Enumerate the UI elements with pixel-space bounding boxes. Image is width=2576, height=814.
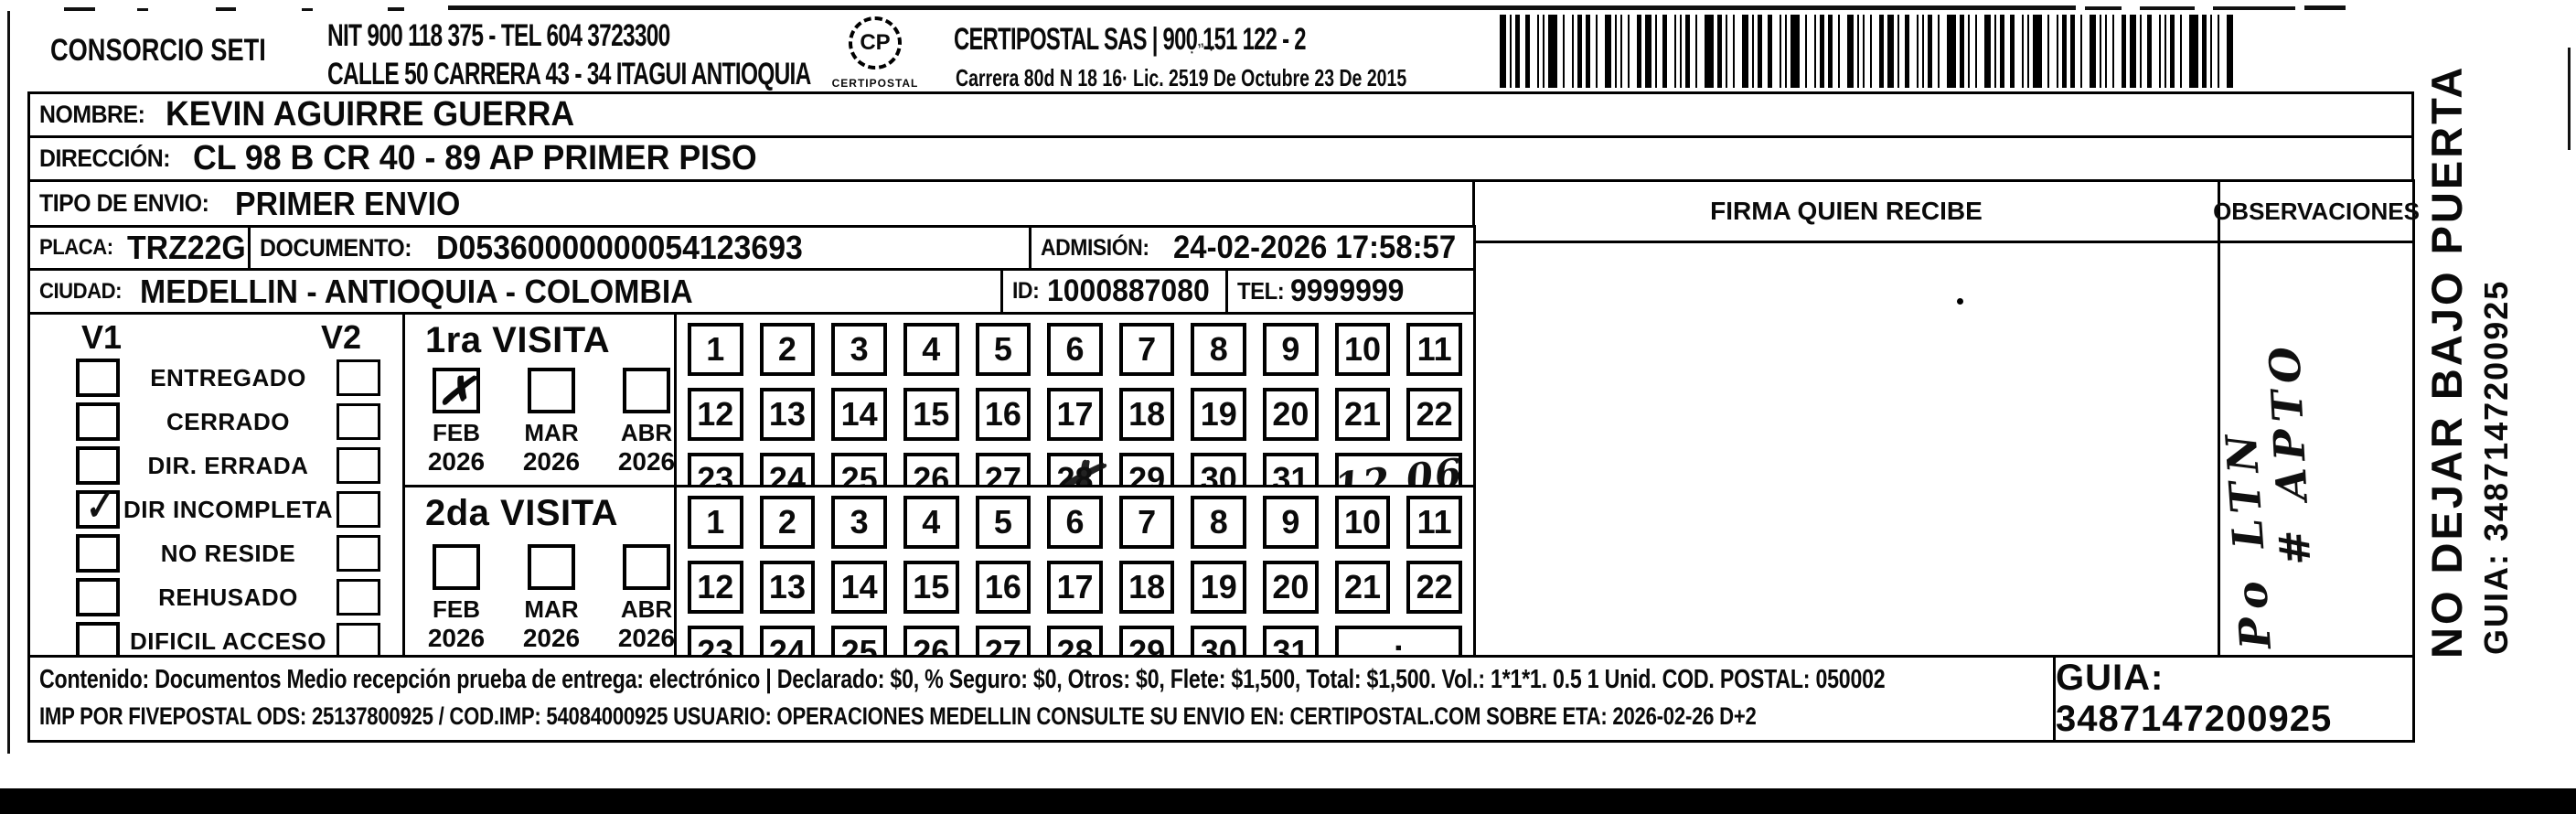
status-label-cerrado: CERRADO [120,408,337,436]
barcode-bar [1586,15,1590,88]
barcode-bar [2202,15,2207,88]
barcode-bar [2147,15,2152,88]
scan-artifact-bottom-bar [0,788,2576,814]
visit1-day-grid: 1234567891011121314151617181920212223242… [688,323,1462,506]
barcode-bar [1500,15,1506,88]
direccion-label: DIRECCIÓN: [39,145,170,173]
visit2-year-label: 2026 [614,624,679,653]
visit1-day-18[interactable]: 18 [1119,388,1175,441]
barcode-bar [1685,15,1690,88]
visit2-day-4[interactable]: 4 [903,496,959,549]
scan-artifact [2304,5,2346,10]
tel-value: 9999999 [1290,273,1404,309]
barcode-bar [1637,15,1641,88]
visit1-month-label: FEB [423,419,489,447]
ink-dot [1957,298,1963,305]
side-note: NO DEJAR BAJO PUERTA GUIA: 3487147200925 [2421,55,2559,659]
row-placa: PLACA: TRZ22G [27,225,251,271]
status-panel: V1 V2 ENTREGADOCERRADODIR. ERRADA✓DIR IN… [27,312,405,658]
visit2-month-label: FEB [423,595,489,624]
barcode-bar [1905,15,1909,88]
status-label-entregado: ENTREGADO [120,364,337,392]
visit2-day-18[interactable]: 18 [1119,561,1175,614]
visit1-day-20[interactable]: 20 [1263,388,1319,441]
visit2-month-mar: MAR2026 [518,544,584,653]
barcode-bar [1984,15,1991,88]
visit2-checkbox-mar[interactable] [528,544,575,590]
visit1-day-16[interactable]: 16 [976,388,1031,441]
barcode-bar [1847,15,1854,88]
logo-wordmark: CERTIPOSTAL [821,77,929,90]
visit1-day-13[interactable]: 13 [760,388,816,441]
barcode-bar [1695,15,1697,88]
visit2-day-2[interactable]: 2 [760,496,816,549]
visit2-day-12[interactable]: 12 [688,561,743,614]
barcode-bar [1717,15,1722,88]
barcode-bar [1752,15,1754,88]
barcode-bar [2210,15,2212,88]
barcode-bar [1820,15,1824,88]
barcode-bar [1705,15,1714,88]
visit1-day-12[interactable]: 12 [688,388,743,441]
barcode-bar [2105,15,2107,88]
barcode-bar [1742,15,1748,88]
visit1-day-4[interactable]: 4 [903,323,959,376]
barcode-bar [1733,15,1735,88]
placa-value: TRZ22G [127,229,246,267]
scan-artifact [216,7,236,11]
firma-signature-area[interactable] [1472,241,2220,658]
visit1-day-1[interactable]: 1 [688,323,743,376]
scan-artifact-right-edge [2568,48,2571,150]
barcode-bar [1596,15,1598,88]
scan-artifact [388,7,404,11]
barcode-bar [1563,15,1565,88]
observaciones-header-label: OBSERVACIONES [2213,198,2420,226]
barcode-bar [1628,15,1630,88]
scan-artifact-left-edge [7,11,10,754]
visit2-month-label: MAR [518,595,584,624]
visit1-year-label: 2026 [518,447,584,477]
checkbox-v1-dir-errada[interactable] [76,446,120,485]
barcode-bar [2033,15,2042,88]
scan-artifact [64,7,95,11]
visit2-year-label: 2026 [423,624,489,653]
visit2-day-8[interactable]: 8 [1191,496,1246,549]
row-nombre: NOMBRE: KEVIN AGUIRRE GUERRA [27,91,2414,138]
visit1-day-17[interactable]: 17 [1047,388,1103,441]
checkbox-v1-dir-incompleta[interactable]: ✓ [76,490,120,529]
scan-speck: ·”· [1188,38,1220,63]
status-label-rehusado: REHUSADO [120,584,337,612]
visit2-day-5[interactable]: 5 [976,496,1031,549]
barcode-bar [1780,15,1781,88]
tel-label: TEL: [1237,277,1284,305]
barcode-bar [2130,15,2136,88]
visit2-title: 2da VISITA [425,493,618,534]
visit1-day-7[interactable]: 7 [1119,323,1175,376]
side-note-guia: GUIA: 3487147200925 [2477,55,2516,659]
barcode-bar [1525,15,1530,88]
barcode-bar [1805,15,1807,88]
barcode-bar [2010,15,2015,88]
visit1-day-14[interactable]: 14 [831,388,887,441]
logo-monogram: CP [860,30,890,56]
barcode-bar [1548,15,1557,88]
visit1-day-6[interactable]: 6 [1047,323,1103,376]
visit1-day-19[interactable]: 19 [1191,388,1246,441]
scan-artifact [2140,6,2195,10]
row-ciudad: CIUDAD: MEDELLIN - ANTIOQUIA - COLOMBIA [27,268,1003,315]
status-row: REHUSADO [30,576,402,618]
barcode-bar [1975,15,1977,88]
certipostal-seal-icon: CP [849,16,902,70]
barcode-bar [1680,15,1682,88]
status-label-dir-errada: DIR. ERRADA [120,452,337,480]
visit1-year-label: 2026 [614,447,679,477]
barcode-bar [1655,15,1657,88]
barcode-bar [2180,15,2182,88]
checkbox-v1-no-reside[interactable] [76,534,120,573]
id-value: 1000887080 [1047,273,1210,309]
visit1-title: 1ra VISITA [425,320,610,361]
barcode-bar [1897,15,1899,88]
visit1-month-feb: ✗FEB2026 [423,368,489,477]
barcode-bar [1537,15,1539,88]
barcode-bar [1515,15,1520,88]
scanned-shipping-label: CONSORCIO SETI NIT 900 118 375 - TEL 604… [0,0,2576,814]
visit1-panel: 1ra VISITA ✗FEB2026MAR2026ABR2026 [402,312,677,487]
barcode-bar [2170,15,2175,88]
barcode-bar [1838,15,1840,88]
barcode-bar [1726,15,1727,88]
visit2-day-19[interactable]: 19 [1191,561,1246,614]
documento-label: DOCUMENTO: [260,234,412,262]
barcode-bar [1620,15,1622,88]
barcode-bar [1857,15,1859,88]
visit2-day-22[interactable]: 22 [1406,561,1462,614]
barcode-bar [2159,15,2161,88]
status-row: ✓DIR INCOMPLETA [30,488,402,530]
visit2-checkbox-feb[interactable] [433,544,480,590]
visit1-day-11[interactable]: 11 [1406,323,1462,376]
barcode-bar [1947,15,1956,88]
barcode-bar [1828,15,1833,88]
barcode-bar [1785,15,1787,88]
side-note-warning: NO DEJAR BAJO PUERTA [2421,55,2472,659]
documento-value: D05360000000054123693 [436,229,803,267]
scan-artifact [302,8,313,11]
visit2-day-14[interactable]: 14 [831,561,887,614]
status-label-dificil-acceso: DIFICIL ACCESO [120,627,337,656]
visit2-day-21[interactable]: 21 [1335,561,1391,614]
v2-header: V2 [321,318,361,357]
barcode-bar [1994,15,1996,88]
barcode-bar [2090,15,2096,88]
barcode-bar [1572,15,1574,88]
nombre-value: KEVIN AGUIRRE GUERRA [166,95,574,134]
visit1-month-label: MAR [518,419,584,447]
sender-address-line: CALLE 50 CARRERA 43 - 34 ITAGUI ANTIOQUI… [327,57,811,92]
company-name-line: CERTIPOSTAL SAS | 900 151 122 - 2 [954,22,1306,58]
barcode-bar [1960,15,1964,88]
visit1-day-9[interactable]: 9 [1263,323,1319,376]
admision-label: ADMISIÓN: [1041,235,1149,262]
visit2-day-grid: 1234567891011121314151617181920212223242… [688,496,1462,679]
visit2-panel: 2da VISITA FEB2026MAR2026ABR2026 [402,485,677,658]
visit1-year-label: 2026 [423,447,489,477]
visit2-checkbox-abr[interactable] [623,544,670,590]
barcode-bar [1928,15,1932,88]
barcode-bar [1645,15,1651,88]
nombre-label: NOMBRE: [39,101,144,129]
handwritten-x-mark: ✗ [436,364,476,417]
barcode-bar [2027,15,2029,88]
checkbox-v2-dificil-acceso[interactable] [337,623,380,659]
barcode-bar [1968,15,1970,88]
ciudad-label: CIUDAD: [39,279,122,305]
barcode-bar [2047,15,2049,88]
barcode-bar [1605,15,1611,88]
visit2-day-7[interactable]: 7 [1119,496,1175,549]
tipo-envio-value: PRIMER ENVIO [235,185,460,223]
barcode-bar [1674,15,1676,88]
row-documento: DOCUMENTO: D05360000000054123693 [248,225,1031,271]
barcode-bar [2218,15,2219,88]
visit1-checkbox-feb[interactable]: ✗ [433,368,480,413]
row-admision: ADMISIÓN: 24-02-2026 17:58:57 [1029,225,1476,271]
row-id: ID: 1000887080 [1000,268,1228,315]
visit2-day-20[interactable]: 20 [1263,561,1319,614]
status-label-no-reside: NO RESIDE [120,540,337,568]
barcode-bar [1790,15,1800,88]
visit2-month-feb: FEB2026 [423,544,489,653]
barcode-bar [2057,15,2058,88]
barcode-bar [2022,15,2024,88]
barcode-bar [2000,15,2004,88]
status-label-dir-incompleta: DIR INCOMPLETA [120,496,337,524]
barcode-bar [2070,15,2075,88]
visit2-months: FEB2026MAR2026ABR2026 [423,544,679,653]
tipo-envio-label: TIPO DE ENVIO: [39,189,208,218]
barcode-bar [1870,15,1872,88]
barcode-bar [1879,15,1884,88]
visit1-day-2[interactable]: 2 [760,323,816,376]
v1-header: V1 [81,318,122,357]
visit2-day-11[interactable]: 11 [1406,496,1462,549]
barcode-bar [1887,15,1894,88]
barcode-bar [2062,15,2067,88]
visit2-month-label: ABR [614,595,679,624]
barcode-bar [1543,15,1545,88]
visit2-month-abr: ABR2026 [614,544,679,653]
barcode-bar [1615,15,1617,88]
checkbox-v2-dir-errada[interactable] [337,447,380,484]
visit2-day-13[interactable]: 13 [760,561,816,614]
status-row: DIR. ERRADA [30,444,402,487]
barcode-bar [1814,15,1816,88]
barcode-bar [2227,15,2233,88]
barcode-bar [2140,15,2142,88]
status-rows: ENTREGADOCERRADODIR. ERRADA✓DIR INCOMPLE… [30,357,402,662]
scan-artifact [137,8,148,11]
visit1-checkbox-abr[interactable] [623,368,670,413]
checkbox-v2-entregado[interactable] [337,359,380,396]
handwritten-observation: Po LTN # APTO [2218,256,2355,649]
admision-value: 24-02-2026 17:58:57 [1173,230,1456,266]
visit1-day-3[interactable]: 3 [831,323,887,376]
placa-label: PLACA: [39,235,113,261]
visit1-day-8[interactable]: 8 [1191,323,1246,376]
checkbox-v1-rehusado[interactable] [76,578,120,616]
status-row: CERRADO [30,401,402,443]
barcode-bar [1917,15,1919,88]
firma-header-label: FIRMA QUIEN RECIBE [1710,197,1983,226]
barcode-bar [1662,15,1667,88]
scan-artifact [2085,6,2122,10]
barcode-bar [2080,15,2082,88]
barcode-bar [2112,15,2114,88]
status-row: NO RESIDE [30,532,402,574]
checkbox-v1-cerrado[interactable] [76,402,120,441]
checkbox-v1-entregado[interactable] [76,359,120,397]
checkbox-v2-cerrado[interactable] [337,403,380,440]
consorcio-name: CONSORCIO SETI [50,33,266,69]
barcode-bar [2122,15,2126,88]
visit1-day-5[interactable]: 5 [976,323,1031,376]
checkbox-v2-dir-incompleta[interactable] [337,491,380,528]
visit2-day-6[interactable]: 6 [1047,496,1103,549]
visit1-month-label: ABR [614,419,679,447]
guia-number: GUIA: 3487147200925 [2056,658,2412,740]
barcode-bar [1863,15,1865,88]
barcode-bar [1938,15,1940,88]
checkbox-v2-no-reside[interactable] [337,535,380,572]
visit1-month-mar: MAR2026 [518,368,584,477]
barcode-bar [1510,15,1512,88]
visit1-day-21[interactable]: 21 [1335,388,1391,441]
sender-nit-line: NIT 900 118 375 - TEL 604 3723300 [327,18,670,54]
visit2-day-10[interactable]: 10 [1335,496,1391,549]
visit2-day-1[interactable]: 1 [688,496,743,549]
visit2-day-17[interactable]: 17 [1047,561,1103,614]
checkbox-v2-rehusado[interactable] [337,579,380,616]
row-tipo-envio: TIPO DE ENVIO: PRIMER ENVIO [27,179,1475,228]
visit1-day-22[interactable]: 22 [1406,388,1462,441]
scan-artifact [2213,6,2295,10]
visit2-day-15[interactable]: 15 [903,561,959,614]
visit2-year-label: 2026 [518,624,584,653]
visit1-day-grid-panel: 1234567891011121314151617181920212223242… [674,312,1476,487]
company-license-line: Carrera 80d N 18 16· Lic. 2519 De Octubr… [956,64,1406,92]
id-label: ID: [1012,278,1039,305]
shipment-barcode [1500,15,2237,88]
barcode-bar [2189,15,2198,88]
footer-line2: IMP POR FIVEPOSTAL ODS: 25137800925 / CO… [39,702,1683,731]
row-tel: TEL: 9999999 [1225,268,1476,315]
barcode-bar [1922,15,1924,88]
status-row: ENTREGADO [30,357,402,399]
ciudad-value: MEDELLIN - ANTIOQUIA - COLOMBIA [140,273,693,311]
barcode-bar [1758,15,1762,88]
barcode-bar [2164,15,2166,88]
handwritten-check-mark: ✓ [78,481,118,530]
footer-info: Contenido: Documentos Medio recepción pr… [27,655,2056,743]
footer-line1: Contenido: Documentos Medio recepción pr… [39,665,1643,695]
direccion-value: CL 98 B CR 40 - 89 AP PRIMER PISO [193,139,757,178]
firma-header: FIRMA QUIEN RECIBE [1472,179,2220,243]
barcode-bar [1577,15,1582,88]
visit2-day-grid-panel: 1234567891011121314151617181920212223242… [674,485,1476,658]
visit1-month-abr: ABR2026 [614,368,679,477]
barcode-bar [2100,15,2101,88]
guia-box: GUIA: 3487147200925 [2053,655,2415,743]
visit1-months: ✗FEB2026MAR2026ABR2026 [423,368,679,477]
visit1-day-15[interactable]: 15 [903,388,959,441]
visit1-checkbox-mar[interactable] [528,368,575,413]
visit2-day-16[interactable]: 16 [976,561,1031,614]
observaciones-header: OBSERVACIONES [2218,179,2415,243]
visit2-day-9[interactable]: 9 [1263,496,1319,549]
barcode-bar [1768,15,1772,88]
visit2-day-3[interactable]: 3 [831,496,887,549]
visit1-day-10[interactable]: 10 [1335,323,1391,376]
row-direccion: DIRECCIÓN: CL 98 B CR 40 - 89 AP PRIMER … [27,135,2414,182]
scan-artifact-topline [448,5,2076,10]
